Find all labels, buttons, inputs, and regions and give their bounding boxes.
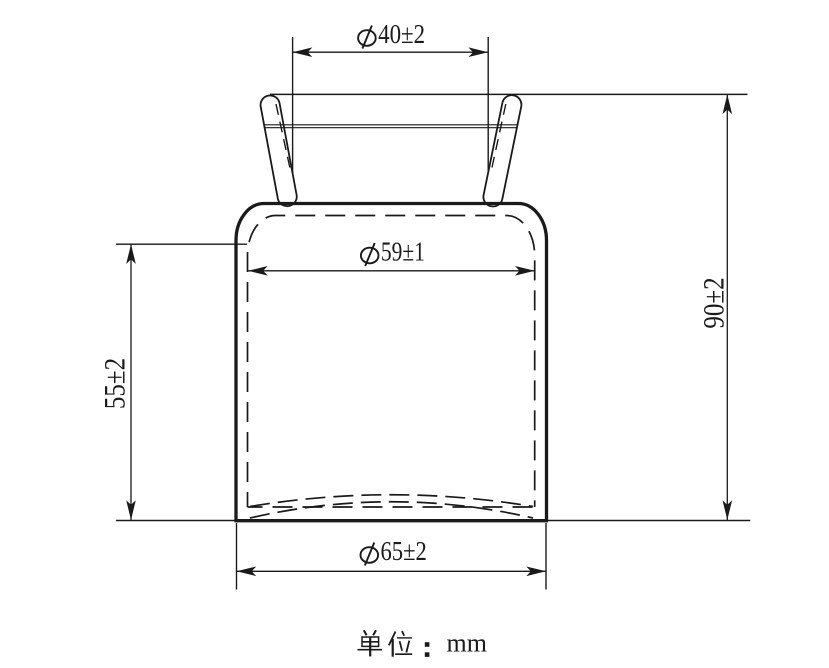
svg-text:59±1: 59±1 <box>381 237 425 267</box>
svg-text:55±2: 55±2 <box>99 358 132 409</box>
svg-text:65±2: 65±2 <box>381 536 427 566</box>
svg-text:mm: mm <box>447 629 487 658</box>
svg-text:90±2: 90±2 <box>698 277 731 328</box>
svg-text:40±2: 40±2 <box>378 19 425 49</box>
